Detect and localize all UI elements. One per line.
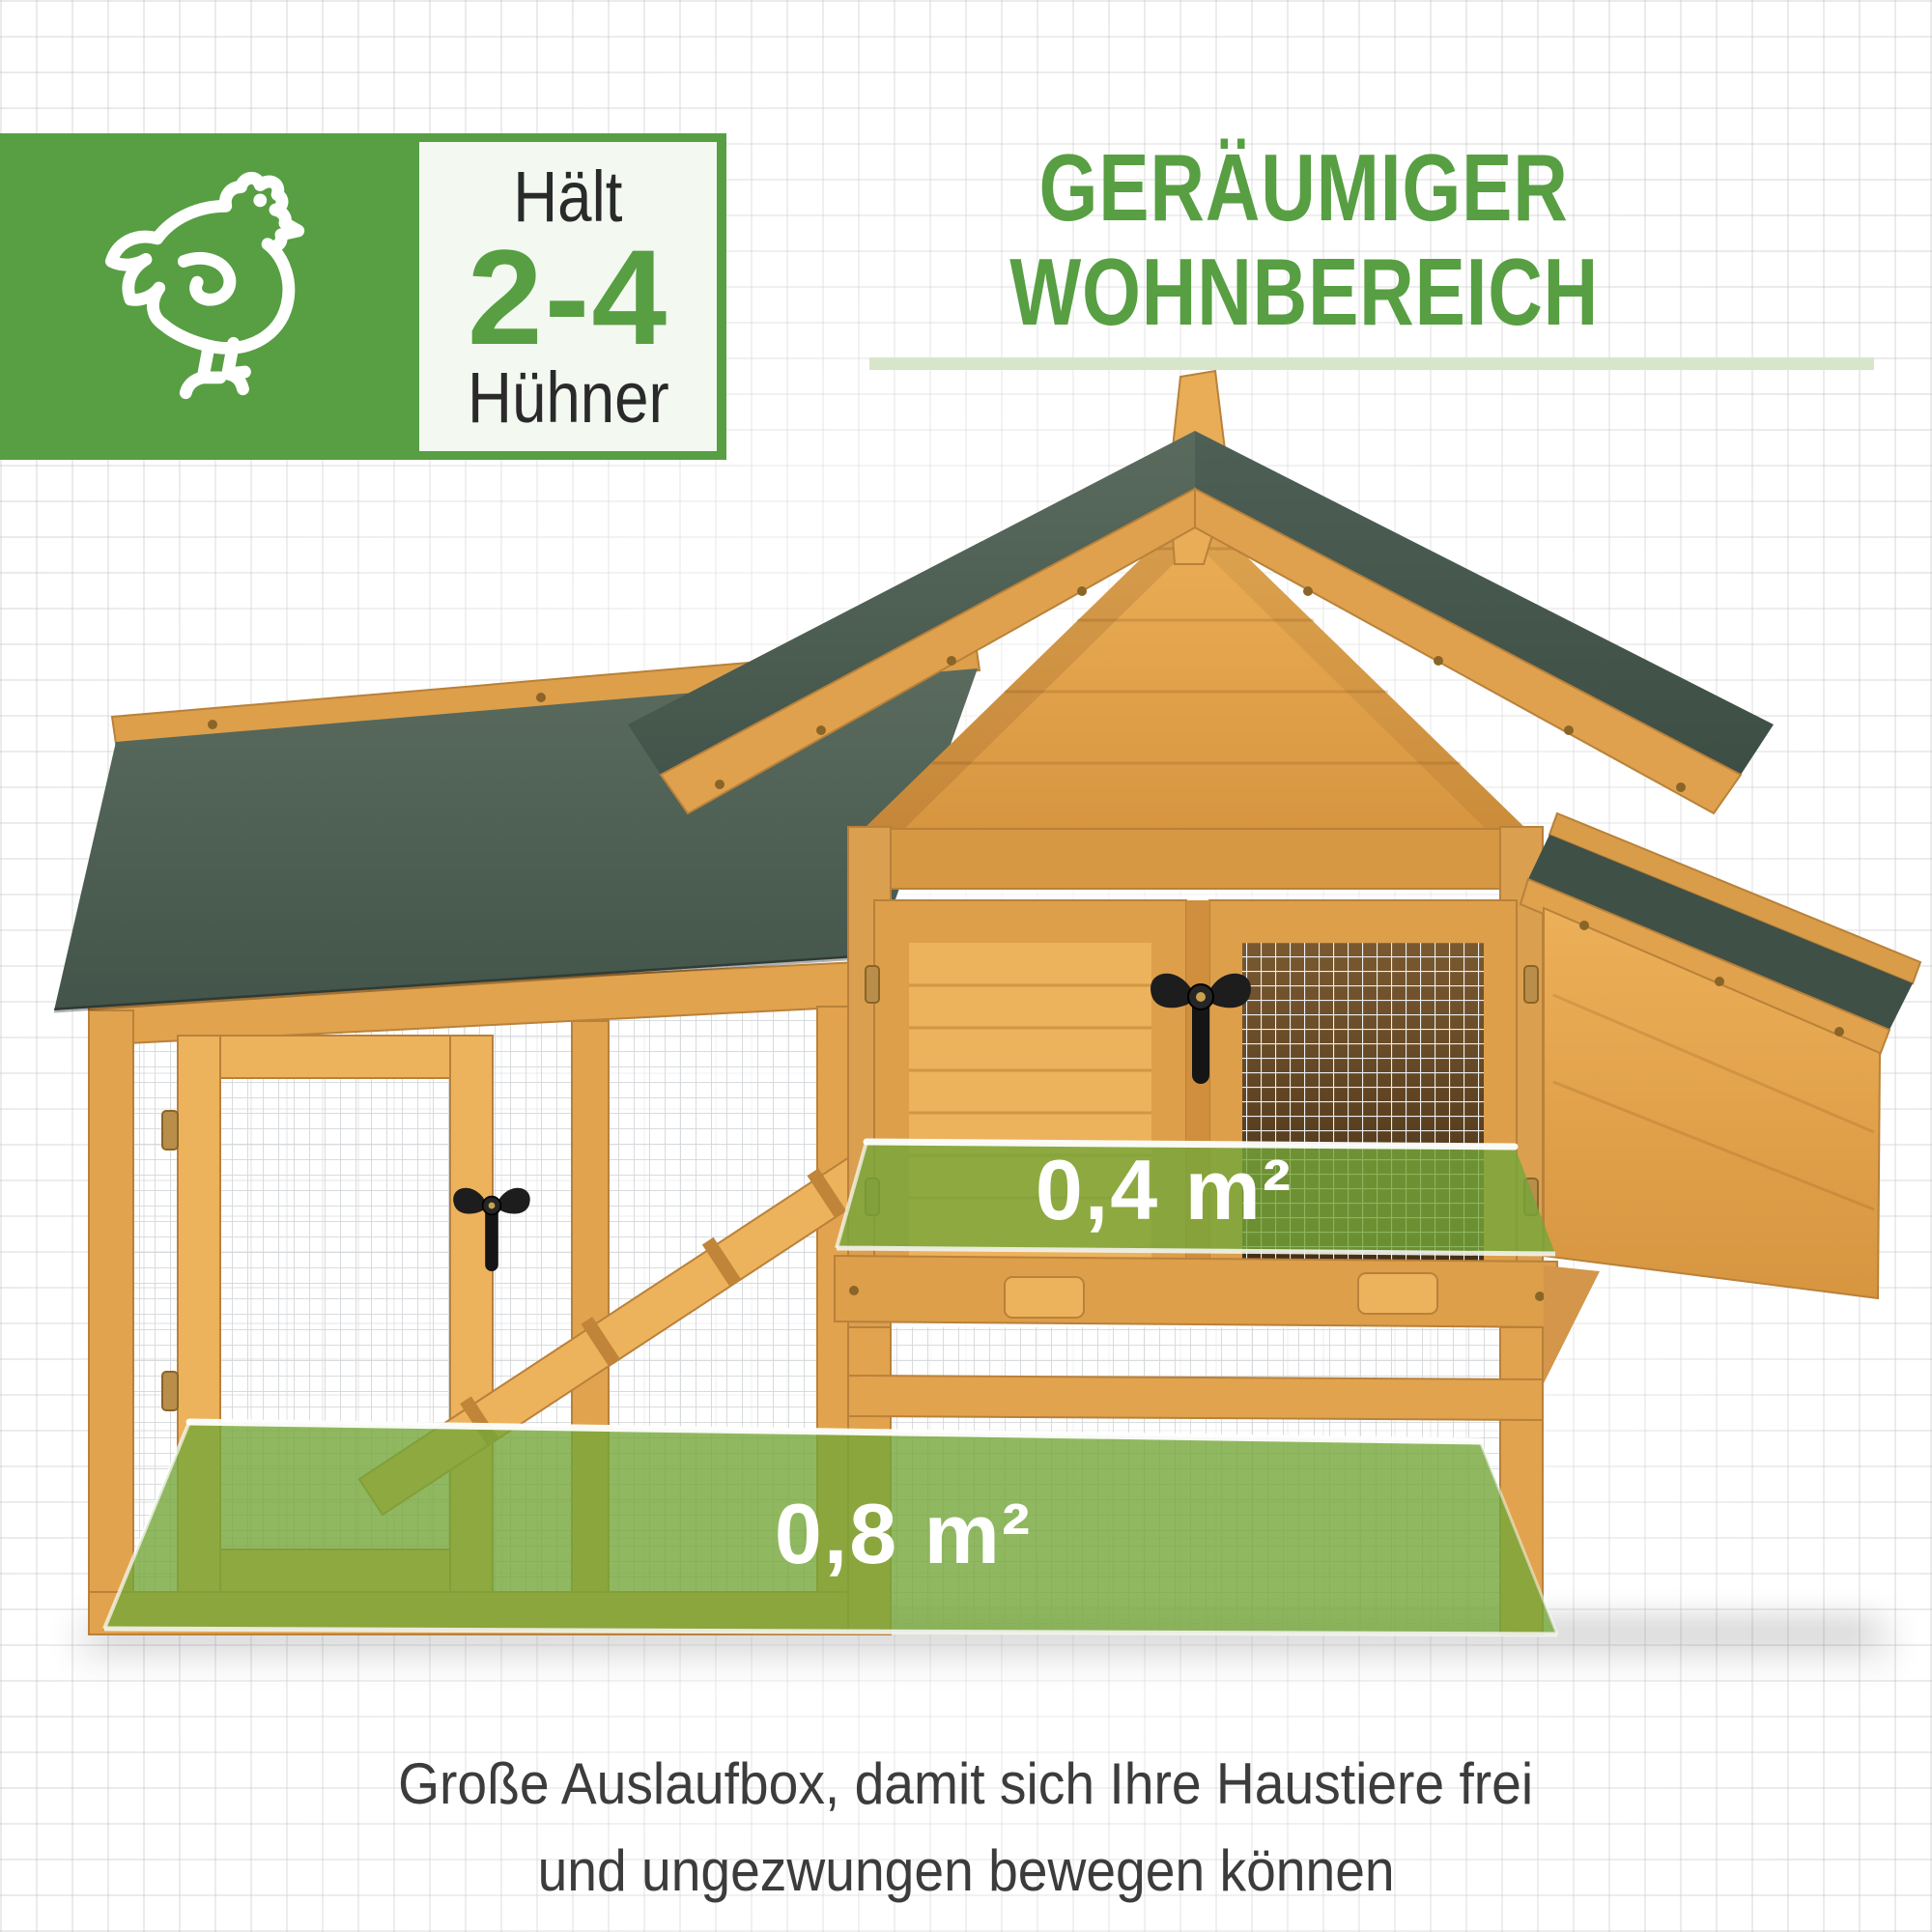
nest-box — [1520, 813, 1920, 1383]
product-infographic: Hält 2-4 Hühner GERÄUMIGER WOHNBEREICH — [0, 0, 1932, 1932]
caption: Große Auslaufbox, damit sich Ihre Hausti… — [0, 1741, 1932, 1915]
house-lower-beam — [848, 1376, 1543, 1420]
chicken-coop-illustration: 0,4 m² 0,8 m² — [0, 0, 1932, 1932]
nest-box-brace — [1544, 1265, 1600, 1383]
house-floor-overlay: 0,4 m² — [837, 1142, 1555, 1254]
house-area-label: 0,4 m² — [1036, 1142, 1293, 1237]
run-floor-overlay: 0,8 m² — [104, 1422, 1557, 1634]
header-board — [862, 829, 1528, 889]
run-area-label: 0,8 m² — [775, 1486, 1032, 1581]
caption-line-2: und ungezwungen bewegen können — [0, 1828, 1932, 1915]
tray-front — [835, 1256, 1557, 1327]
caption-line-1: Große Auslaufbox, damit sich Ihre Hausti… — [0, 1741, 1932, 1828]
